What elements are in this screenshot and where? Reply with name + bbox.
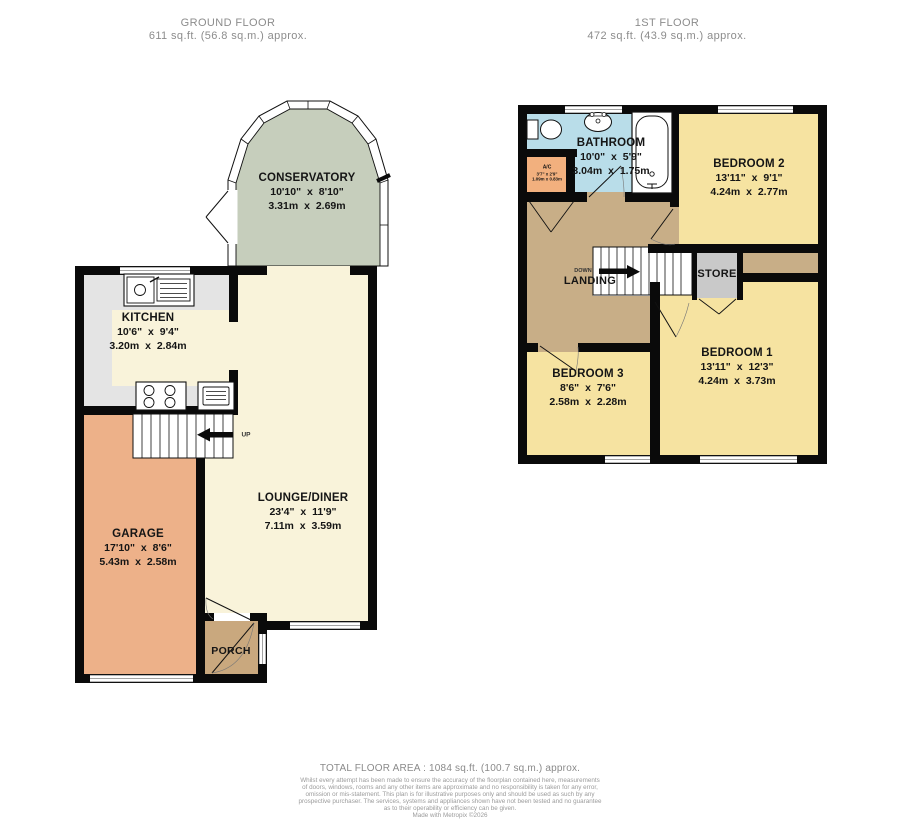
bedroom1-window [700, 455, 797, 464]
room-label-bathroom: BATHROOM 10'0" x 5'9" 3.04m x 1.75m [572, 136, 649, 178]
floorplan-canvas: GROUND FLOOR 611 sq.ft. (56.8 sq.m.) app… [0, 0, 900, 823]
ground-stairs [133, 414, 233, 458]
disclaimer-line: of doors, windows, rooms and any other i… [0, 784, 900, 791]
disclaimer: Whilst every attempt has been made to en… [0, 777, 900, 819]
room-label-conservatory: CONSERVATORY 10'10" x 8'10" 3.31m x 2.69… [259, 171, 356, 213]
stairs-up-label: UP [241, 432, 250, 439]
room-label-bedroom2: BEDROOM 2 13'11" x 9'1" 4.24m x 2.77m [710, 157, 787, 199]
basin-icon [585, 113, 612, 132]
first-floor-title: 1ST FLOOR [517, 17, 817, 30]
disclaimer-line: as to their operability or efficiency ca… [0, 805, 900, 812]
disclaimer-line: prospective purchaser. The services, sys… [0, 798, 900, 805]
room-label-bedroom3: BEDROOM 3 8'6" x 7'6" 2.58m x 2.28m [549, 367, 626, 409]
garage-door [90, 674, 193, 683]
disclaimer-line: omission or mis-statement. This plan is … [0, 791, 900, 798]
ground-floor-area: 611 sq.ft. (56.8 sq.m.) approx. [78, 30, 378, 43]
room-label-lounge-diner: LOUNGE/DINER 23'4" x 11'9" 7.11m x 3.59m [258, 491, 349, 533]
conservatory-door [206, 191, 228, 243]
footer: TOTAL FLOOR AREA : 1084 sq.ft. (100.7 sq… [0, 763, 900, 819]
lounge-window [290, 621, 360, 630]
kitchen-oven-icon [198, 382, 234, 410]
ground-floor-header: GROUND FLOOR 611 sq.ft. (56.8 sq.m.) app… [78, 17, 378, 43]
first-floor-area: 472 sq.ft. (43.9 sq.m.) approx. [517, 30, 817, 43]
room-label-store: STORE [697, 268, 736, 280]
bedroom2-window [718, 105, 793, 114]
total-floor-area: TOTAL FLOOR AREA : 1084 sq.ft. (100.7 sq… [0, 763, 900, 774]
kitchen-sink-icon [124, 274, 194, 306]
first-floor-plan [505, 95, 835, 470]
metropix-credit: Made with Metropix ©2026 [0, 812, 900, 819]
stairs-down-label: DOWN [574, 268, 591, 274]
toilet-icon [527, 120, 562, 139]
room-label-bedroom1: BEDROOM 1 13'11" x 12'3" 4.24m x 3.73m [698, 346, 775, 388]
first-stairs [593, 247, 692, 295]
room-label-airing-cupboard: A/C 3'7" x 2'9" 1.09m x 0.83m [532, 166, 562, 183]
room-label-garage: GARAGE 17'10" x 8'6" 5.43m x 2.58m [99, 527, 176, 569]
porch-window [258, 634, 267, 664]
ground-floor-title: GROUND FLOOR [78, 17, 378, 30]
room-label-kitchen: KITCHEN 10'6" x 9'4" 3.20m x 2.84m [109, 311, 186, 353]
disclaimer-line: Whilst every attempt has been made to en… [0, 777, 900, 784]
bedroom3-window [605, 455, 650, 464]
kitchen-hob-icon [136, 382, 186, 410]
first-floor-header: 1ST FLOOR 472 sq.ft. (43.9 sq.m.) approx… [517, 17, 817, 43]
room-label-porch: PORCH [211, 645, 250, 657]
room-label-landing: LANDING [564, 275, 616, 287]
